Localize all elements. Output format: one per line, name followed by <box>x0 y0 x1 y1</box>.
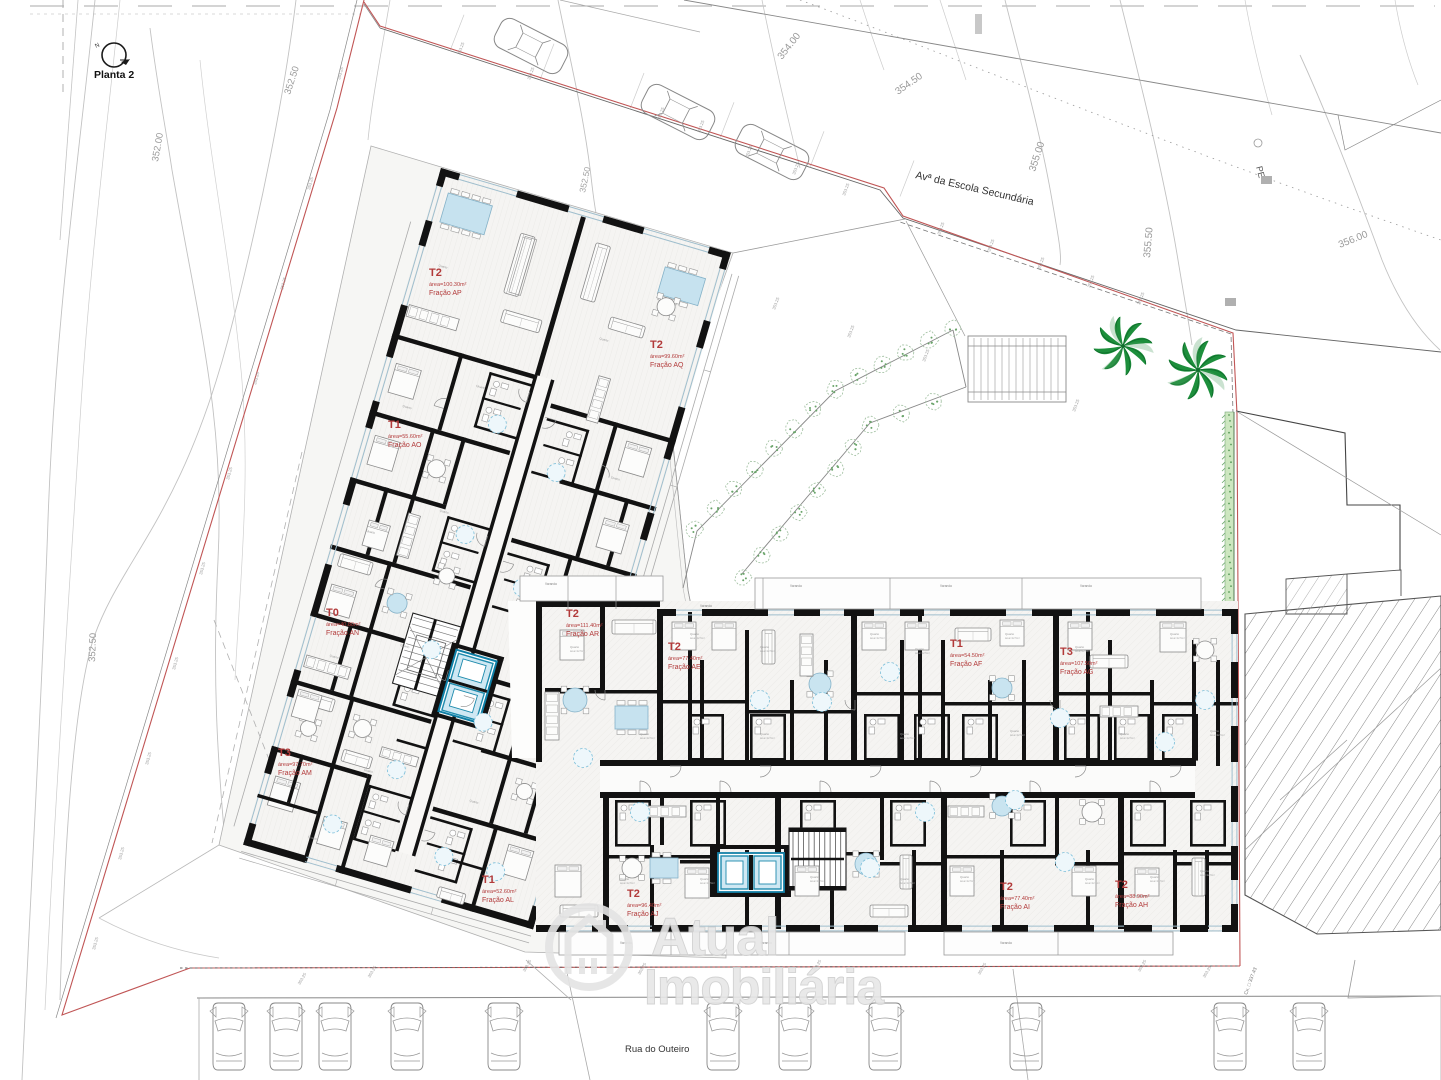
svg-text:área=111.40m²: área=111.40m² <box>566 623 603 629</box>
svg-text:área=12.5m²: área=12.5m² <box>1200 873 1215 877</box>
svg-text:área=107.50m²: área=107.50m² <box>1060 661 1098 667</box>
svg-text:Fração AO: Fração AO <box>388 442 422 449</box>
svg-text:área=12.5m²: área=12.5m² <box>1075 649 1090 653</box>
svg-text:área=55.60m²: área=55.60m² <box>388 434 423 440</box>
svg-text:área=54.50m²: área=54.50m² <box>950 653 985 659</box>
svg-text:Quarto: Quarto <box>900 877 910 881</box>
svg-text:área=12.5m²: área=12.5m² <box>760 736 775 740</box>
svg-text:área=12.5m²: área=12.5m² <box>620 881 635 885</box>
svg-text:Fração AM: Fração AM <box>278 770 312 777</box>
svg-text:Quarto: Quarto <box>700 877 710 881</box>
svg-text:Fração AI: Fração AI <box>1000 904 1030 911</box>
svg-text:área=12.5m²: área=12.5m² <box>915 651 930 655</box>
svg-text:Quarto: Quarto <box>1170 632 1180 636</box>
svg-text:Fração AQ: Fração AQ <box>650 362 684 369</box>
svg-text:T2: T2 <box>668 641 681 653</box>
svg-text:Quarto: Quarto <box>870 632 880 636</box>
svg-text:área=12.5m²: área=12.5m² <box>870 636 885 640</box>
svg-text:Fração AN: Fração AN <box>326 630 359 637</box>
svg-text:Quarto: Quarto <box>760 732 770 736</box>
svg-text:área=97.70m²: área=97.70m² <box>278 762 313 768</box>
svg-text:Fração AE: Fração AE <box>668 664 701 671</box>
svg-text:T1: T1 <box>482 874 495 886</box>
svg-text:área=99.60m²: área=99.60m² <box>650 354 685 360</box>
svg-text:Quarto: Quarto <box>810 875 820 879</box>
svg-text:Quarto: Quarto <box>760 645 770 649</box>
svg-text:Fração AF: Fração AF <box>950 661 982 668</box>
svg-text:área=12.5m²: área=12.5m² <box>1085 881 1100 885</box>
svg-text:Quarto: Quarto <box>900 732 910 736</box>
svg-text:Varanda: Varanda <box>1080 584 1092 588</box>
svg-text:T2: T2 <box>1000 881 1013 893</box>
svg-text:Fração AP: Fração AP <box>429 290 462 297</box>
svg-text:área=12.5m²: área=12.5m² <box>810 879 825 883</box>
svg-text:Quarto: Quarto <box>1075 645 1085 649</box>
svg-text:Quarto: Quarto <box>690 632 700 636</box>
svg-text:área=40.80m²: área=40.80m² <box>326 622 361 628</box>
svg-text:área=12.5m²: área=12.5m² <box>1150 879 1165 883</box>
svg-text:Varanda: Varanda <box>940 584 952 588</box>
svg-text:Varanda: Varanda <box>700 604 712 608</box>
svg-text:área=12.5m²: área=12.5m² <box>960 879 975 883</box>
svg-text:área=88.90m²: área=88.90m² <box>1115 894 1150 900</box>
svg-text:Quarto: Quarto <box>1120 732 1130 736</box>
svg-text:Quarto: Quarto <box>1085 877 1095 881</box>
svg-text:T3: T3 <box>278 747 291 759</box>
svg-text:área=12.5m²: área=12.5m² <box>760 649 775 653</box>
svg-text:área=12.5m²: área=12.5m² <box>690 636 705 640</box>
svg-text:área=12.5m²: área=12.5m² <box>1120 736 1135 740</box>
svg-text:área=77.40m²: área=77.40m² <box>668 656 703 662</box>
svg-text:área=12.5m²: área=12.5m² <box>1005 636 1020 640</box>
svg-text:T2: T2 <box>566 608 579 620</box>
svg-text:área=12.5m²: área=12.5m² <box>1010 733 1025 737</box>
svg-text:Fração AG: Fração AG <box>1060 669 1093 676</box>
svg-text:Quarto: Quarto <box>1150 875 1160 879</box>
svg-text:T1: T1 <box>388 419 401 431</box>
svg-text:T2: T2 <box>650 339 663 351</box>
svg-text:Fração AL: Fração AL <box>482 897 514 904</box>
svg-text:área=12.5m²: área=12.5m² <box>900 736 915 740</box>
svg-text:área=52.60m²: área=52.60m² <box>482 889 517 895</box>
svg-text:Quarto: Quarto <box>915 647 925 651</box>
svg-text:área=12.5m²: área=12.5m² <box>900 881 915 885</box>
svg-text:T2: T2 <box>1115 879 1128 891</box>
svg-text:T0: T0 <box>326 607 339 619</box>
svg-text:Quarto: Quarto <box>960 875 970 879</box>
svg-text:T2: T2 <box>627 888 640 900</box>
svg-text:Planta 2: Planta 2 <box>94 69 134 81</box>
svg-text:Quarto: Quarto <box>570 645 580 649</box>
svg-text:T3: T3 <box>1060 646 1073 658</box>
svg-text:Rua do Outeiro: Rua do Outeiro <box>625 1044 689 1055</box>
svg-text:área=100.30m²: área=100.30m² <box>429 282 467 288</box>
svg-text:Quarto: Quarto <box>620 877 630 881</box>
svg-text:Quarto: Quarto <box>1200 869 1210 873</box>
svg-text:área=77.40m²: área=77.40m² <box>1000 896 1035 902</box>
svg-text:Imobiliária: Imobiliária <box>644 959 885 1015</box>
svg-text:T2: T2 <box>429 267 442 279</box>
svg-text:Varanda: Varanda <box>790 584 802 588</box>
svg-text:352.50: 352.50 <box>87 633 99 662</box>
svg-text:Quarto: Quarto <box>1010 729 1020 733</box>
svg-text:área=12.5m²: área=12.5m² <box>1170 636 1185 640</box>
svg-text:T1: T1 <box>950 638 963 650</box>
svg-text:área=12.5m²: área=12.5m² <box>570 649 585 653</box>
svg-text:Fração AR: Fração AR <box>566 631 599 638</box>
svg-text:área=12.5m²: área=12.5m² <box>700 881 715 885</box>
svg-text:Quarto: Quarto <box>640 732 650 736</box>
svg-text:Quarto: Quarto <box>1005 632 1015 636</box>
svg-text:Varanda: Varanda <box>545 582 557 586</box>
svg-text:Varanda: Varanda <box>1000 941 1012 945</box>
svg-text:Quarto: Quarto <box>1210 729 1220 733</box>
svg-text:área=12.5m²: área=12.5m² <box>1210 733 1225 737</box>
svg-text:área=12.5m²: área=12.5m² <box>640 736 655 740</box>
svg-text:Fração AH: Fração AH <box>1115 902 1148 909</box>
